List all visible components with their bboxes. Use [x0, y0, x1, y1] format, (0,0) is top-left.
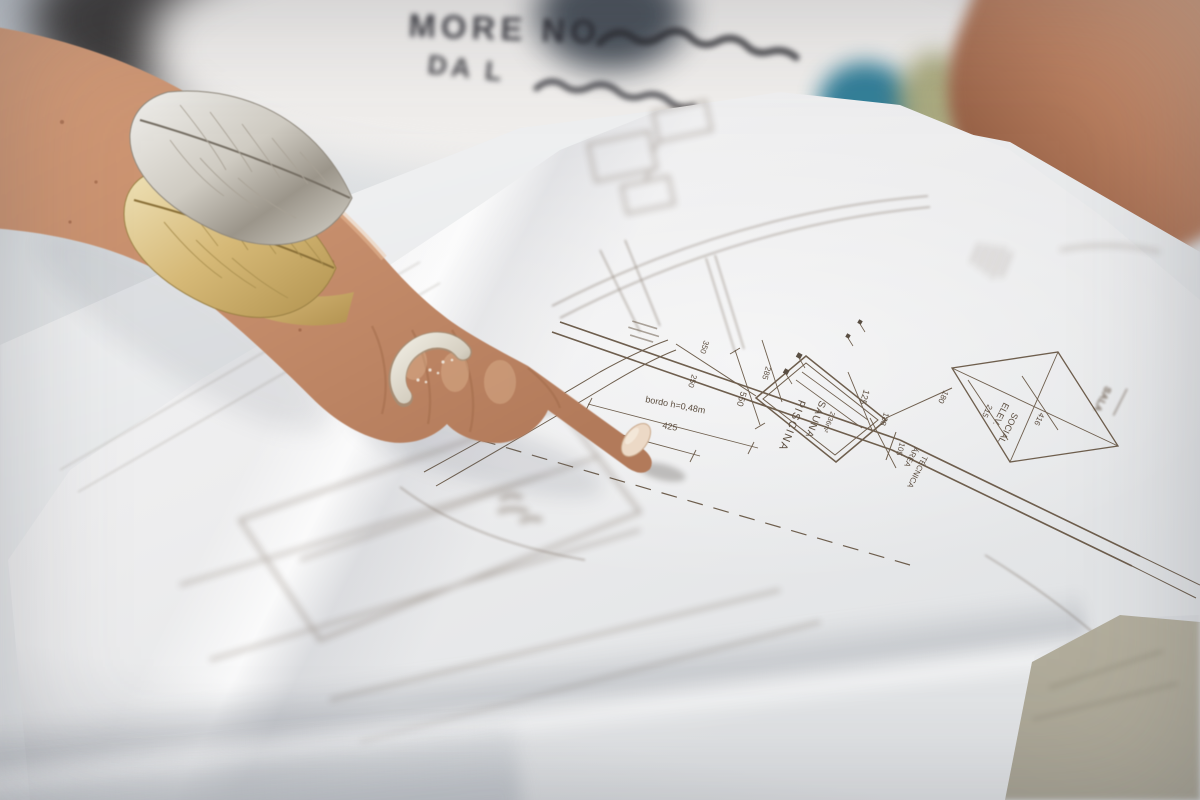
ring-sparkle [451, 359, 454, 362]
ring-sparkle [428, 368, 431, 371]
freckle [60, 120, 64, 124]
ring-sparkle [425, 381, 428, 384]
ring-sparkle [416, 378, 419, 381]
ring-sparkle [437, 372, 440, 375]
arm-group [0, 26, 656, 473]
pointing-arm [0, 0, 1200, 800]
feather-bracelet [124, 91, 354, 325]
photo-canvas: MORE NO DA L [0, 0, 1200, 800]
knuckle [484, 360, 516, 404]
freckle [68, 220, 71, 223]
ring-sparkle [441, 360, 444, 363]
freckle [94, 180, 97, 183]
freckle [298, 328, 301, 331]
